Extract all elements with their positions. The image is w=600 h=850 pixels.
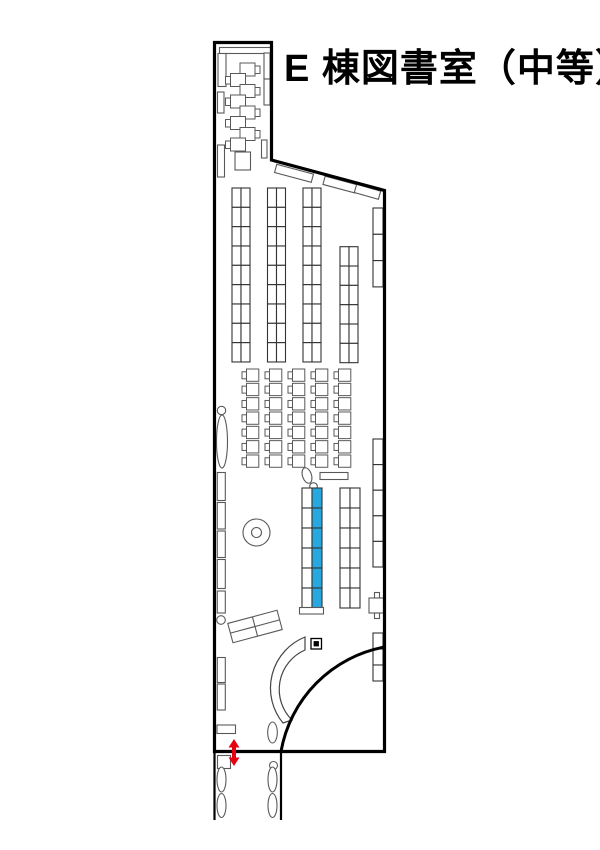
left-window-4 bbox=[217, 503, 225, 530]
top-left-cabinet bbox=[218, 54, 226, 87]
highlighted-shelf-white-column bbox=[302, 488, 312, 608]
corridor-planter bbox=[268, 794, 277, 818]
planter-knob-left bbox=[217, 406, 225, 414]
right-wall-shelf-a bbox=[373, 208, 383, 287]
bookshelf-column-3 bbox=[303, 188, 321, 362]
reading-desk-grid bbox=[242, 369, 351, 467]
right-wall-shelf-c bbox=[373, 633, 383, 681]
bookshelf-column-4 bbox=[340, 247, 358, 363]
top-wall-shelf bbox=[220, 48, 271, 54]
left-window-5 bbox=[217, 531, 225, 558]
left-window-9 bbox=[217, 684, 225, 710]
counter-bar bbox=[320, 473, 348, 480]
corridor-planter bbox=[268, 767, 277, 792]
book-trolley-wheel-bottom bbox=[375, 613, 380, 619]
planter-oval-left bbox=[217, 415, 228, 468]
library-floorplan-page: E 棟図書室（中等） bbox=[0, 0, 600, 850]
highlighted-shelf-base bbox=[300, 608, 324, 615]
bookshelf-column-2 bbox=[268, 188, 286, 362]
small-table bbox=[235, 152, 251, 170]
highlighted-shelf-blue-column bbox=[312, 488, 322, 608]
corridor-planter bbox=[217, 767, 226, 792]
book-trolley-wheel-top bbox=[375, 593, 380, 599]
book-trolley-body bbox=[369, 598, 384, 613]
curved-counter bbox=[270, 637, 305, 723]
small-oval-center bbox=[300, 467, 314, 485]
center-shelf bbox=[340, 488, 360, 608]
gate-marker-inner bbox=[314, 641, 319, 646]
angled-counter-desk bbox=[228, 610, 282, 643]
left-window-2 bbox=[218, 145, 225, 177]
carrel-desk bbox=[226, 138, 246, 151]
bookshelf-column-1 bbox=[232, 188, 250, 362]
wall-knob bbox=[217, 616, 226, 625]
page-title: E 棟図書室（中等） bbox=[284, 47, 600, 90]
left-window-1 bbox=[218, 92, 225, 113]
left-window-6 bbox=[217, 560, 225, 589]
left-window-7 bbox=[217, 591, 225, 613]
right-wall-shelf-top-room bbox=[264, 53, 270, 105]
right-wall-shelf-b bbox=[373, 439, 383, 567]
planter-oval-entrance bbox=[268, 722, 278, 743]
left-window-3 bbox=[217, 473, 225, 501]
round-table-center bbox=[252, 528, 262, 538]
corridor-planter bbox=[217, 794, 226, 818]
curved-partition-wall bbox=[281, 647, 385, 752]
entrance-mat bbox=[217, 725, 236, 734]
corridor-box bbox=[218, 756, 231, 769]
floorplan-svg: E 棟図書室（中等） bbox=[0, 0, 600, 850]
right-wall-shelf-top-room-2 bbox=[262, 140, 268, 158]
left-window-8 bbox=[217, 658, 225, 683]
